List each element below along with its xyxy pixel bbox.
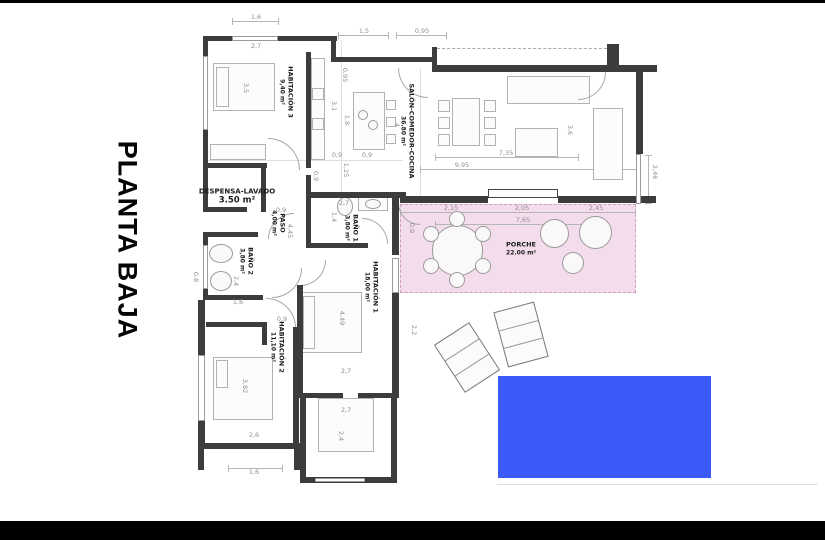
wall xyxy=(297,285,303,398)
dimension-label: 1,6 xyxy=(249,468,259,476)
dimension-label: 1,5 xyxy=(359,27,369,35)
construction-line xyxy=(203,160,403,161)
wall xyxy=(558,196,656,203)
dimension-label: 2,7 xyxy=(251,42,261,50)
porch-chair xyxy=(475,226,491,242)
porch-chair xyxy=(423,258,439,274)
dimension-tick xyxy=(645,203,652,204)
room-label: SALÓN-COMEDOR-COCINA36.80 m² xyxy=(400,83,415,178)
sun-lounger xyxy=(434,322,500,393)
porch-chair xyxy=(423,226,439,242)
dimension-label: 7,65 xyxy=(516,216,530,224)
room-label: PASO4,00 m² xyxy=(271,210,286,236)
dimension-tick xyxy=(578,154,579,161)
swimming-pool xyxy=(498,376,711,478)
furniture xyxy=(484,100,496,112)
dimension-tick xyxy=(338,32,339,39)
wall xyxy=(262,322,267,345)
wall xyxy=(306,52,311,168)
wall xyxy=(203,207,247,212)
dimension-label: 2,4 xyxy=(232,276,240,286)
furniture xyxy=(210,144,266,160)
furniture xyxy=(452,98,480,146)
dimension-label: 0,9 xyxy=(362,151,372,159)
room-area: 11,10 m² xyxy=(270,321,277,373)
room-label: PORCHE22.00 m² xyxy=(506,242,536,257)
door-swing-arc xyxy=(578,72,606,100)
dimension-label: 7,35 xyxy=(499,149,513,157)
dimension-tick xyxy=(446,32,447,39)
room-area: 18,00 m² xyxy=(364,261,371,313)
porch-chair xyxy=(449,211,465,227)
construction-line xyxy=(497,484,818,485)
furniture xyxy=(515,128,558,157)
wall xyxy=(306,175,311,248)
furniture xyxy=(438,117,450,129)
dimension-tick xyxy=(278,18,279,25)
door-swing-arc xyxy=(268,138,300,170)
dimension-label: 2,6 xyxy=(249,431,259,439)
wall xyxy=(198,449,204,470)
door-swing-arc xyxy=(300,260,326,286)
dimension-line xyxy=(232,21,278,22)
room-name: BAÑO 2 xyxy=(246,247,254,275)
dimension-tick xyxy=(396,32,397,39)
room-label: BAÑO 23,80 m² xyxy=(239,247,254,275)
dimension-label: 1,6 xyxy=(251,13,261,21)
furniture xyxy=(216,67,229,107)
sun-lounger xyxy=(493,302,548,368)
room-name: BAÑO 1 xyxy=(351,214,359,242)
dimension-label: 0,95 xyxy=(415,27,429,35)
dimension-tick xyxy=(228,465,229,472)
dimension-label: 1,25 xyxy=(342,163,350,177)
dimension-label: 2,7 xyxy=(341,367,351,375)
room-name: PASO xyxy=(278,210,286,236)
dimension-line xyxy=(400,212,635,213)
room-name: SALÓN-COMEDOR-COCINA xyxy=(407,83,415,178)
letterbox-bottom xyxy=(0,521,825,540)
dimension-label: 2,4 xyxy=(337,431,345,441)
dimension-label: 2,2 xyxy=(410,325,418,335)
room-label: HABITACIÓN 118,00 m² xyxy=(364,261,379,313)
dimension-label: 0,9 xyxy=(312,171,320,181)
wall xyxy=(400,196,488,203)
window xyxy=(203,56,208,130)
wall xyxy=(203,163,267,168)
letterbox-top xyxy=(0,0,825,3)
window xyxy=(203,245,208,289)
window xyxy=(198,355,205,421)
dimension-label: 4,45 xyxy=(286,224,294,238)
furniture xyxy=(484,117,496,129)
wall xyxy=(392,293,399,398)
dimension-label: 9,95 xyxy=(455,161,469,169)
window xyxy=(392,258,399,293)
furniture xyxy=(311,58,325,160)
dimension-line xyxy=(435,157,578,158)
room-area: 3,80 m² xyxy=(239,247,246,275)
dimension-label: 0,8 xyxy=(192,272,200,282)
cooktop-burner xyxy=(368,120,378,130)
room-name: HABITACIÓN 1 xyxy=(371,261,379,313)
wall xyxy=(331,57,437,62)
tv-unit xyxy=(488,189,558,198)
door-swing-arc xyxy=(362,218,388,244)
dimension-tick xyxy=(645,155,652,156)
room-area: 3,80 m² xyxy=(344,214,351,242)
room-name: PORCHE xyxy=(506,242,536,250)
dimension-tick xyxy=(232,18,233,25)
furniture xyxy=(216,360,228,388)
room-name: HABITACIÓN 3 xyxy=(286,66,294,118)
dimension-tick xyxy=(635,209,636,216)
wall xyxy=(203,232,258,237)
furniture xyxy=(438,100,450,112)
dimension-label: 1,6 xyxy=(233,298,243,306)
window xyxy=(315,478,365,482)
dimension-label: 1,8 xyxy=(343,115,351,125)
dimension-label: 2,46 xyxy=(651,165,659,179)
toilet xyxy=(210,271,232,291)
dimension-label: 3,6 xyxy=(566,125,574,135)
dimension-tick xyxy=(435,154,436,161)
cooktop-burner xyxy=(358,110,368,120)
furniture xyxy=(312,88,324,100)
plan-title: PLANTA BAJA xyxy=(112,141,143,340)
wall xyxy=(306,243,368,248)
dimension-tick xyxy=(282,465,283,472)
wall xyxy=(636,72,643,154)
window xyxy=(232,36,278,41)
porch-chair xyxy=(475,258,491,274)
room-area: 36.80 m² xyxy=(400,83,407,178)
furniture xyxy=(386,100,396,110)
wall xyxy=(303,393,343,398)
porch-chair xyxy=(449,272,465,288)
room-area: 4,00 m² xyxy=(271,210,278,236)
wall xyxy=(306,192,406,198)
room-name: HABITACIÓN 2 xyxy=(277,321,285,373)
furniture xyxy=(303,296,315,349)
dimension-label: 0,9 xyxy=(332,151,342,159)
furniture xyxy=(484,134,496,146)
dimension-label: 2,7 xyxy=(341,406,351,414)
wall xyxy=(607,44,619,65)
dimension-label: 3,1 xyxy=(330,101,338,111)
furniture xyxy=(386,134,396,144)
room-label: HABITACIÓN 211,10 m² xyxy=(270,321,285,373)
room-label: BAÑO 13,80 m² xyxy=(344,214,359,242)
dimension-line xyxy=(338,35,388,36)
room-label: DESPENSA-LAVADO3.50 m² xyxy=(199,188,275,207)
wall xyxy=(391,398,397,483)
wall xyxy=(198,443,300,449)
dimension-label: 0,95 xyxy=(341,68,349,82)
room-area: 22.00 m² xyxy=(506,249,536,256)
dimension-label: 3,5 xyxy=(242,83,250,93)
dimension-label: 3,82 xyxy=(241,379,249,393)
wall xyxy=(206,322,266,327)
dimension-label: 4,49 xyxy=(338,311,346,325)
furniture xyxy=(593,108,623,180)
dimension-label: 2,15 xyxy=(444,204,458,212)
dimension-label: 2,7 xyxy=(339,199,349,207)
sink-basin xyxy=(365,199,381,209)
furniture xyxy=(438,134,450,146)
dimension-label: 2,45 xyxy=(589,204,603,212)
room-area: 9,40 m² xyxy=(279,66,286,118)
dimension-label: 0,9 xyxy=(408,223,416,233)
egg-chair xyxy=(540,219,569,248)
dimension-line xyxy=(396,35,446,36)
dimension-label: 2,05 xyxy=(515,204,529,212)
dimension-tick xyxy=(388,32,389,39)
wall xyxy=(432,65,657,72)
dimension-tick xyxy=(420,166,421,173)
furniture xyxy=(312,118,324,130)
sink-basin xyxy=(209,244,233,263)
room-area: 3.50 m² xyxy=(199,196,275,206)
side-table xyxy=(562,252,584,274)
egg-chair xyxy=(579,216,612,249)
room-name: DESPENSA-LAVADO xyxy=(199,188,275,196)
dimension-label: 1,4 xyxy=(330,212,338,222)
window xyxy=(636,154,641,204)
floor-plan-canvas: PLANTA BAJA 1,62,71,50,950,953,13,51,843… xyxy=(0,0,825,540)
room-label: HABITACIÓN 39,40 m² xyxy=(279,66,294,118)
wall xyxy=(300,398,306,483)
glass-opening-dashed xyxy=(437,48,607,49)
wall xyxy=(392,197,399,255)
